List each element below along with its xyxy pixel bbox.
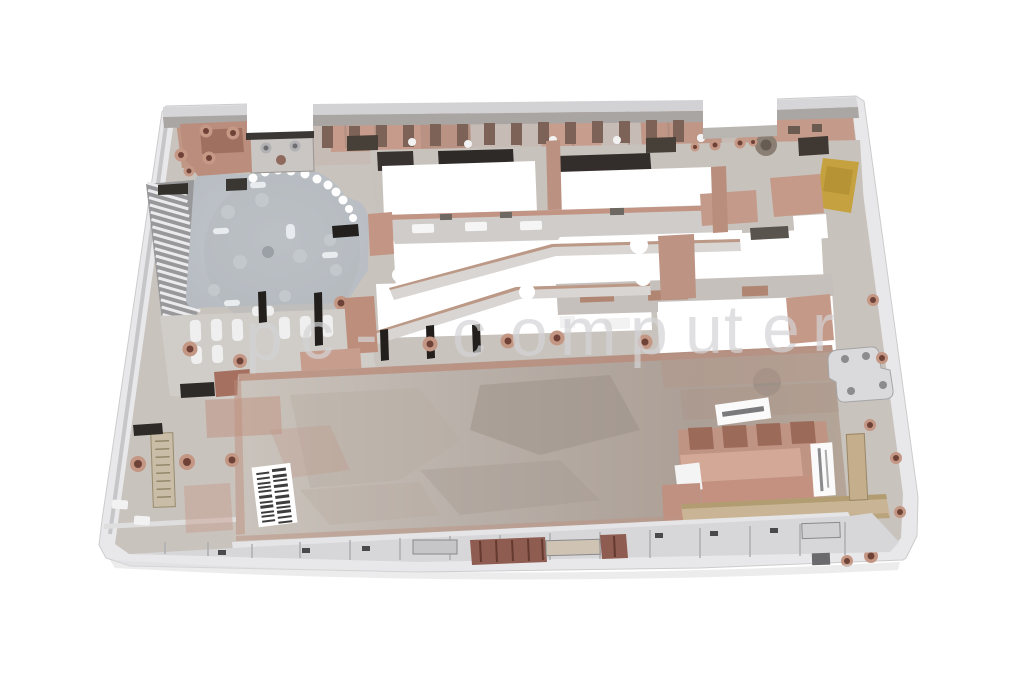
svg-text:o: o bbox=[510, 295, 548, 371]
svg-text:t: t bbox=[724, 292, 743, 368]
svg-text:u: u bbox=[685, 292, 723, 368]
svg-text:r: r bbox=[812, 290, 835, 366]
svg-text:m: m bbox=[560, 294, 617, 370]
svg-text:p: p bbox=[630, 293, 668, 369]
svg-text:p: p bbox=[245, 299, 283, 375]
svg-text:c: c bbox=[452, 296, 486, 372]
svg-text:-: - bbox=[355, 297, 378, 373]
svg-text:c: c bbox=[300, 298, 334, 374]
svg-text:e: e bbox=[762, 291, 800, 367]
